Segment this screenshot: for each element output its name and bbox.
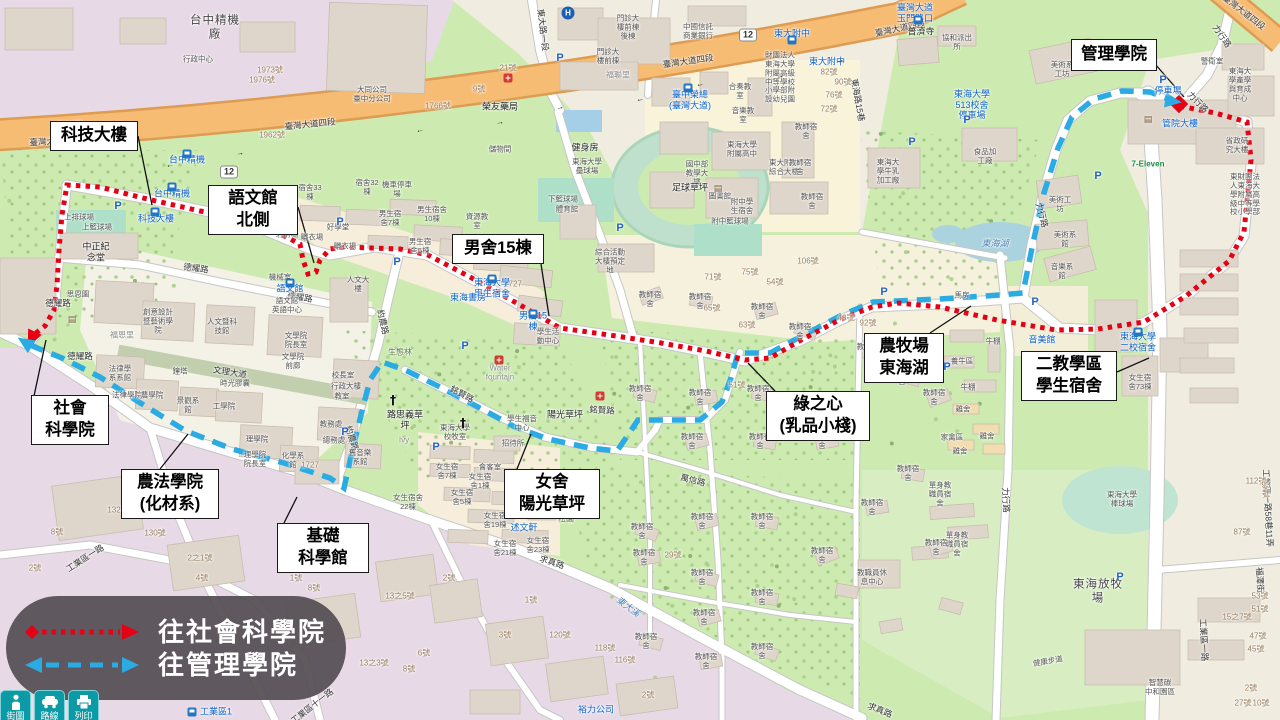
streetmap-button-label: 街圖 xyxy=(6,712,24,720)
route-button-label: 路線 xyxy=(40,712,58,720)
print-button-label: 列印 xyxy=(74,712,92,720)
map-toolbar: 街圖 路線 列印 xyxy=(0,690,99,720)
legend-blue-label: 往管理學院 xyxy=(158,652,298,678)
legend-blue-route: 往管理學院 xyxy=(22,652,346,678)
person-icon xyxy=(8,694,24,710)
route-button[interactable]: 路線 xyxy=(34,690,65,720)
legend-red-route: 往社會科學院 xyxy=(22,619,346,645)
route-legend: 往社會科學院 往管理學院 xyxy=(6,596,346,700)
red-route-sample-icon xyxy=(22,622,142,642)
legend-red-label: 往社會科學院 xyxy=(158,619,326,645)
blue-route-sample-icon xyxy=(22,655,142,675)
print-button[interactable]: 列印 xyxy=(68,690,99,720)
streetmap-button[interactable]: 街圖 xyxy=(0,690,31,720)
car-icon xyxy=(41,694,59,710)
map-canvas[interactable]: 臺灣大道四段臺灣大道四段臺灣大道四段臺灣大道四段臺灣大道四段東大路一段力行路力行… xyxy=(0,0,1280,720)
printer-icon xyxy=(76,694,92,710)
